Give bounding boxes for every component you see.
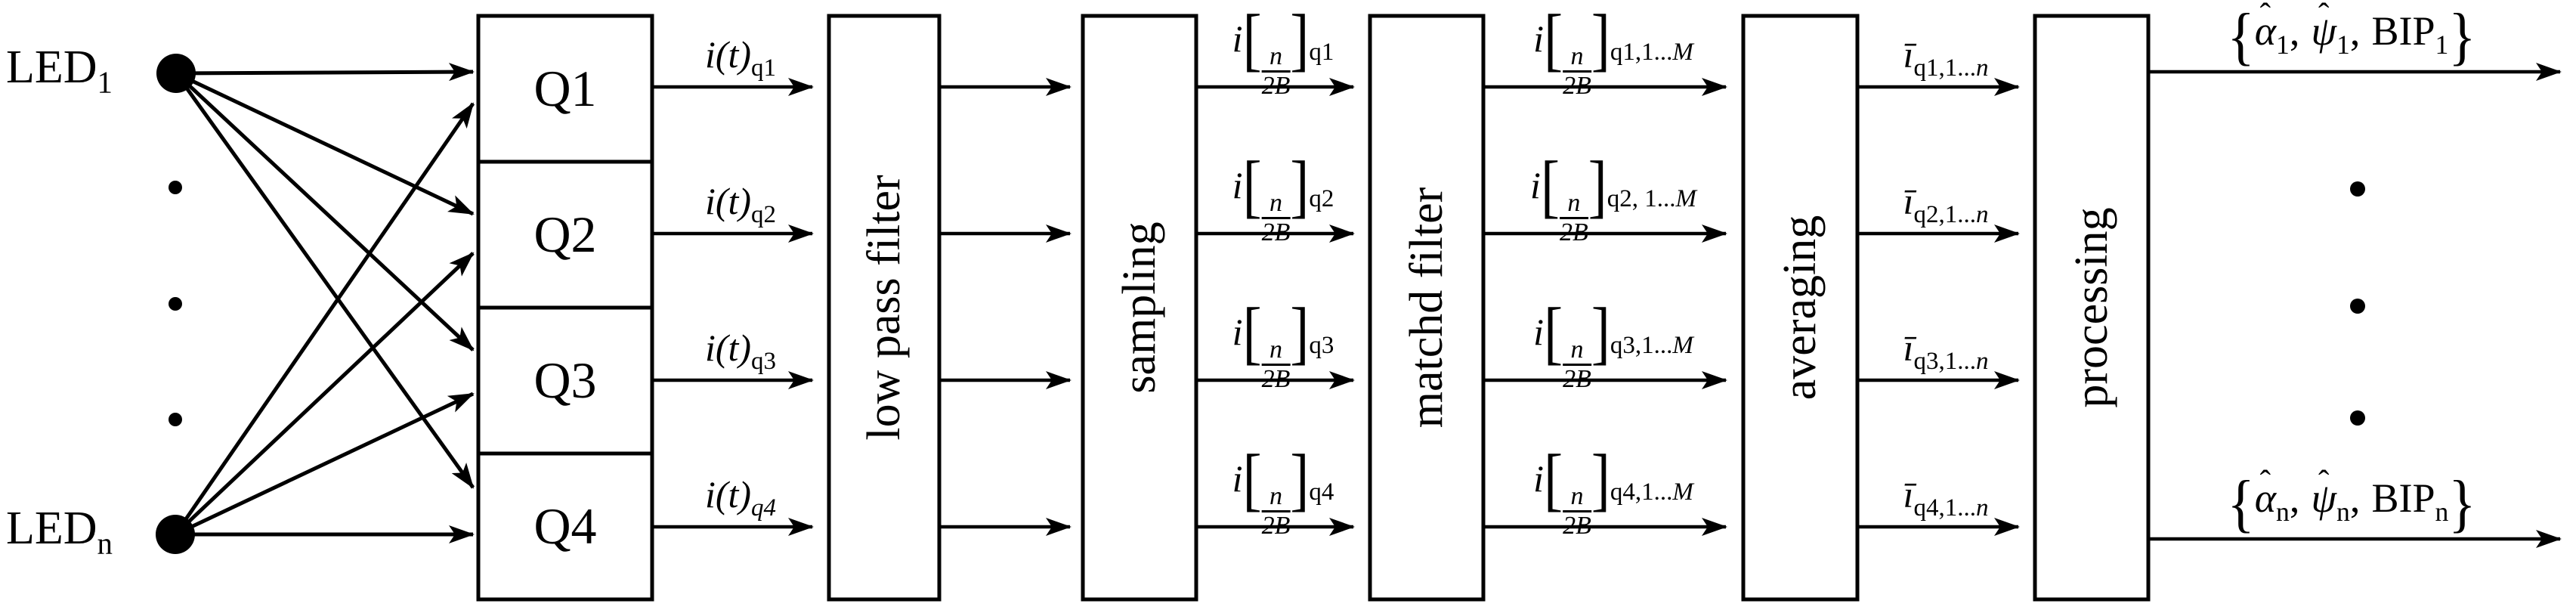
frac-numerator: n xyxy=(1269,484,1282,509)
signal-label-avg-q1: īq1,1...n xyxy=(1903,36,1989,81)
q1-label: Q1 xyxy=(533,63,596,114)
q3-label: Q3 xyxy=(533,354,596,406)
signal-label-it-q2: i(t)q2 xyxy=(705,182,776,228)
left-ellipsis-dot xyxy=(169,413,182,426)
signal-label-sampled-q4: i[n2B]q4 xyxy=(1232,459,1334,539)
led-1-label: LED1 xyxy=(6,44,113,98)
signal-subscript: q3 xyxy=(751,348,776,375)
right-bracket: ] xyxy=(1591,454,1610,506)
signal-subscript-italic: M xyxy=(1675,185,1696,212)
output-label-1: {ˆα1,ˆψ1,BIP1} xyxy=(2227,11,2475,60)
psi-subscript: 1 xyxy=(2336,29,2350,60)
processing-label: processing xyxy=(2068,207,2115,407)
signal-subscript-italic: M xyxy=(1672,332,1693,359)
frac-numerator: n xyxy=(1269,190,1282,216)
signal-label-sampled-q3: i[n2B]q3 xyxy=(1232,312,1334,392)
ledn-to-q1-arrow xyxy=(175,104,473,534)
alpha-subscript: n xyxy=(2276,497,2290,527)
averaging-label: averaging xyxy=(1777,215,1823,400)
signal-label-it-q3: i(t)q3 xyxy=(705,329,776,374)
output-label-n: {ˆαn,ˆψn,BIPn} xyxy=(2227,478,2475,527)
signal-symbol: i(t) xyxy=(705,327,751,369)
signal-subscript: q3,1... xyxy=(1610,332,1673,359)
ledn-to-q3-arrow xyxy=(175,394,473,534)
signal-symbol: i xyxy=(1533,311,1544,353)
left-bracket: [ xyxy=(1544,454,1563,506)
led-text: LED xyxy=(6,42,97,93)
comma: , xyxy=(2290,8,2300,54)
right-bracket: ] xyxy=(1591,307,1610,360)
frac-numerator: n xyxy=(1269,44,1282,70)
signal-symbol: i xyxy=(1232,311,1243,353)
signal-subscript: q2 xyxy=(1309,185,1334,212)
right-bracket: ] xyxy=(1588,160,1607,213)
signal-subscript: q1,1... xyxy=(1913,54,1976,82)
frac-denominator: 2B xyxy=(1563,73,1591,99)
left-ellipsis-dot xyxy=(169,181,182,194)
signal-symbol: i(t) xyxy=(705,33,751,76)
q2-label: Q2 xyxy=(533,209,596,260)
alpha-hat: ˆα xyxy=(2255,478,2276,519)
right-ellipsis-dot xyxy=(2350,410,2365,426)
right-ellipsis-dot xyxy=(2350,181,2365,197)
block-diagram: LED1 LEDn Q1 Q2 Q3 Q4 low pass filter sa… xyxy=(0,0,2576,613)
frac-denominator: 2B xyxy=(1262,220,1291,246)
frac-denominator: 2B xyxy=(1262,367,1291,392)
alpha-subscript: 1 xyxy=(2276,29,2290,60)
signal-label-sampled-q2: i[n2B]q2 xyxy=(1232,166,1334,246)
frac-denominator: 2B xyxy=(1563,367,1591,392)
signal-subscript-italic: n xyxy=(1976,494,1989,522)
frac-denominator: 2B xyxy=(1563,513,1591,539)
right-bracket: ] xyxy=(1290,14,1309,67)
frac-denominator: 2B xyxy=(1262,513,1291,539)
frac-numerator: n xyxy=(1570,44,1583,70)
hat-mark: ˆ xyxy=(2318,466,2329,499)
led-n-label: LEDn xyxy=(6,505,113,559)
left-bracket: [ xyxy=(1243,454,1262,506)
left-brace: { xyxy=(2227,11,2254,63)
led1-to-q4-arrow xyxy=(176,73,473,488)
signal-symbol: i xyxy=(1232,457,1243,500)
right-brace: } xyxy=(2448,11,2475,63)
right-bracket: ] xyxy=(1290,454,1309,506)
signal-label-avg-q3: īq3,1...n xyxy=(1903,329,1989,374)
signal-label-avg-q2: īq2,1...n xyxy=(1903,182,1989,228)
signal-subscript: q2 xyxy=(751,201,776,228)
signal-label-it-q1: i(t)q1 xyxy=(705,36,776,81)
left-brace: { xyxy=(2227,478,2254,530)
comma: , xyxy=(2290,475,2300,521)
signal-symbol: ī xyxy=(1903,327,1914,369)
led1-to-q3-arrow xyxy=(176,73,473,350)
signal-subscript: q1 xyxy=(751,54,776,82)
signal-symbol: ī xyxy=(1903,473,1914,515)
led-subscript: 1 xyxy=(97,66,113,100)
bip-text: BIP xyxy=(2371,475,2435,521)
alpha-hat: ˆα xyxy=(2255,11,2276,51)
signal-subscript-italic: q4 xyxy=(751,494,776,522)
bip-text: BIP xyxy=(2371,8,2435,54)
signal-subscript-italic: M xyxy=(1672,39,1693,66)
comma: , xyxy=(2350,8,2361,54)
q4-label: Q4 xyxy=(533,500,596,552)
signal-label-matched-q1: i[n2B]q1,1...M xyxy=(1533,19,1693,99)
signal-label-it-q4: i(t)q4 xyxy=(705,475,776,521)
frac-denominator: 2B xyxy=(1262,73,1291,99)
signal-symbol: i xyxy=(1533,17,1544,60)
frac-numerator: n xyxy=(1567,190,1580,216)
frac-numerator: n xyxy=(1269,337,1282,363)
led-1-dot xyxy=(156,54,196,93)
psi-hat: ˆψ xyxy=(2311,11,2336,51)
signal-subscript-italic: n xyxy=(1976,54,1989,82)
right-bracket: ] xyxy=(1290,307,1309,360)
led1-to-q2-arrow xyxy=(176,73,473,214)
signal-subscript: q4,1... xyxy=(1913,494,1976,522)
signal-symbol: i xyxy=(1530,164,1541,206)
led-text: LED xyxy=(6,503,97,554)
signal-subscript: q3 xyxy=(1309,332,1334,359)
sampling-label: sampling xyxy=(1116,221,1163,393)
left-ellipsis-dot xyxy=(169,297,182,311)
signal-subscript: q2,1... xyxy=(1913,201,1976,228)
signal-subscript: q4 xyxy=(1309,478,1334,506)
signal-symbol: i xyxy=(1232,164,1243,206)
signal-label-avg-q4: īq4,1...n xyxy=(1903,475,1989,521)
signal-subscript: q1,1... xyxy=(1610,39,1673,66)
led-n-dot xyxy=(156,515,195,554)
signal-label-matched-q3: i[n2B]q3,1...M xyxy=(1533,312,1693,392)
signal-subscript-italic: n xyxy=(1976,348,1989,375)
left-bracket: [ xyxy=(1544,14,1563,67)
signal-symbol: i xyxy=(1232,17,1243,60)
hat-mark: ˆ xyxy=(2260,0,2271,33)
signal-label-matched-q4: i[n2B]q4,1...M xyxy=(1533,459,1693,539)
led-subscript: n xyxy=(97,527,113,561)
matched-filter-label: matchd filter xyxy=(1403,187,1450,428)
signal-subscript-italic: n xyxy=(1976,201,1989,228)
bip-subscript: 1 xyxy=(2435,29,2448,60)
right-ellipsis-dot xyxy=(2350,299,2365,314)
signal-symbol: ī xyxy=(1903,33,1914,76)
right-bracket: ] xyxy=(1591,14,1610,67)
right-bracket: ] xyxy=(1290,160,1309,213)
left-bracket: [ xyxy=(1544,307,1563,360)
left-bracket: [ xyxy=(1243,160,1262,213)
left-bracket: [ xyxy=(1243,14,1262,67)
left-bracket: [ xyxy=(1541,160,1560,213)
right-brace: } xyxy=(2448,478,2475,530)
signal-symbol: i xyxy=(1533,457,1544,500)
frac-numerator: n xyxy=(1570,484,1583,509)
left-bracket: [ xyxy=(1243,307,1262,360)
signal-symbol: ī xyxy=(1903,180,1914,222)
psi-hat: ˆψ xyxy=(2311,478,2336,519)
frac-denominator: 2B xyxy=(1560,220,1588,246)
hat-mark: ˆ xyxy=(2260,466,2271,499)
ledn-to-q2-arrow xyxy=(175,253,473,534)
hat-mark: ˆ xyxy=(2318,0,2329,33)
signal-subscript-italic: M xyxy=(1672,478,1693,506)
signal-subscript: q1 xyxy=(1309,39,1334,66)
psi-subscript: n xyxy=(2336,497,2350,527)
signal-label-matched-q2: i[n2B]q2, 1...M xyxy=(1530,166,1696,246)
frac-numerator: n xyxy=(1570,337,1583,363)
signal-subscript: q3,1... xyxy=(1913,348,1976,375)
signal-subscript: q2, 1... xyxy=(1607,185,1676,212)
low-pass-filter-label: low pass filter xyxy=(861,175,908,440)
signal-symbol: i(t) xyxy=(705,473,751,515)
comma: , xyxy=(2350,475,2361,521)
signal-label-sampled-q1: i[n2B]q1 xyxy=(1232,19,1334,99)
bip-subscript: n xyxy=(2435,497,2448,527)
signal-symbol: i(t) xyxy=(705,180,751,222)
signal-subscript: q4,1... xyxy=(1610,478,1673,506)
led1-to-q1-arrow xyxy=(176,72,473,73)
